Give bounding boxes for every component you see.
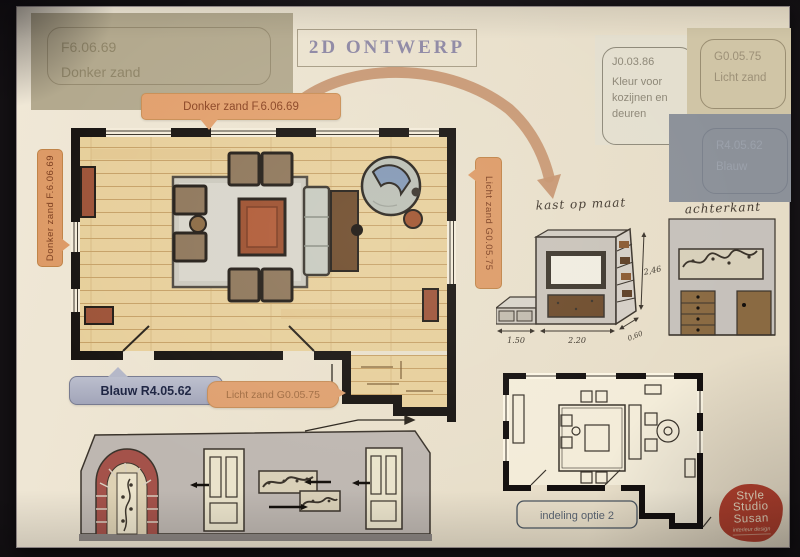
- design-board-page: F6.06.69 Donker zand 2D ONTWERP J0.03.86…: [16, 6, 790, 548]
- chair-bottom-2: [262, 269, 292, 301]
- chair-bottom-1: [229, 269, 259, 301]
- logo-tagline: interieur design: [733, 527, 771, 536]
- swatch-donker-zand-code: F6.06.69: [61, 37, 257, 58]
- wall-bench-right: [423, 289, 438, 321]
- round-lounge-chair: [362, 157, 421, 215]
- wall-bench-left-bottom: [85, 307, 113, 324]
- logo-line3: Susan: [733, 513, 768, 526]
- chair-top-1: [229, 153, 259, 185]
- chair-left-1: [174, 186, 206, 214]
- achterkant-sketch: achterkant: [665, 201, 781, 339]
- callout-donker-zand-left-wall: Donker zand F.6.06.69: [37, 149, 63, 267]
- swatch-blauw: R4.05.62 Blauw: [669, 114, 791, 202]
- sofa: [304, 187, 329, 275]
- callout-licht-zand-floor: Licht zand G0.05.75: [207, 381, 339, 408]
- achterkant-drawing: [665, 215, 781, 339]
- swatch-licht-zand-name: Licht zand: [714, 70, 772, 87]
- wall-bench-left-top: [81, 167, 95, 217]
- swatch-licht-zand: G0.05.75 Licht zand: [687, 28, 791, 120]
- kast-side-shelves: [616, 229, 636, 324]
- arch-vine-panel: [117, 473, 137, 534]
- swatch-kozijnen-code: J0.03.86: [612, 55, 684, 71]
- kast-op-maat-sketch: kast op maat: [496, 197, 666, 351]
- callout-donker-zand-left-text: Donker zand F.6.06.69: [45, 155, 56, 261]
- swatch-licht-zand-code: G0.05.75: [714, 49, 772, 66]
- swatch-blauw-name: Blauw: [716, 159, 774, 176]
- optie2-plan: indeling optie 2: [501, 367, 713, 539]
- swatch-donker-zand-name: Donker zand: [61, 62, 257, 83]
- callout-licht-zand-right-text: Licht zand G0.05.75: [483, 176, 494, 271]
- kast-cabinet: [536, 230, 628, 324]
- brick-archway: [96, 449, 158, 534]
- kast-dim-depth: 0,60: [627, 329, 645, 342]
- swatch-blauw-chip: R4.05.62 Blauw: [702, 128, 788, 194]
- chair-left-2: [174, 233, 206, 261]
- callout-donker-zand-wall: Donker zand F.6.06.69: [141, 93, 341, 120]
- page-title: 2D ONTWERP: [297, 29, 477, 67]
- photo-of-design-board: { "title": "2D ONTWERP", "swatches": { "…: [0, 0, 800, 557]
- optie2-label-box: indeling optie 2: [517, 501, 637, 528]
- callout-licht-zand-right-wall: Licht zand G0.05.75: [475, 157, 502, 289]
- wall-elevation: [79, 421, 439, 549]
- achterkant-art-band: [679, 249, 763, 279]
- kast-dim-height: 2,46: [642, 264, 662, 277]
- kast-drawing: 1.50 2.20 0,60 2,46: [496, 211, 666, 351]
- swatch-blauw-code: R4.05.62: [716, 138, 774, 155]
- callout-blauw: Blauw R4.05.62: [69, 376, 223, 405]
- swatch-licht-zand-chip: G0.05.75 Licht zand: [700, 39, 786, 109]
- elevation-floor: [79, 534, 432, 541]
- chair-top-2: [262, 153, 292, 185]
- side-table-small: [404, 210, 422, 228]
- side-table-round: [190, 216, 206, 232]
- optie2-drawing: indeling optie 2: [501, 367, 713, 539]
- kast-dim-left: 1.50: [507, 336, 525, 345]
- optie2-label: indeling optie 2: [540, 510, 614, 522]
- studio-logo: Style Studio Susan interieur design: [718, 483, 784, 543]
- console-table: [331, 191, 363, 271]
- swatch-donker-zand-chip: F6.06.69 Donker zand: [47, 27, 271, 85]
- kast-dim-width: 2.20: [567, 336, 586, 345]
- optie2-floor: [509, 379, 697, 485]
